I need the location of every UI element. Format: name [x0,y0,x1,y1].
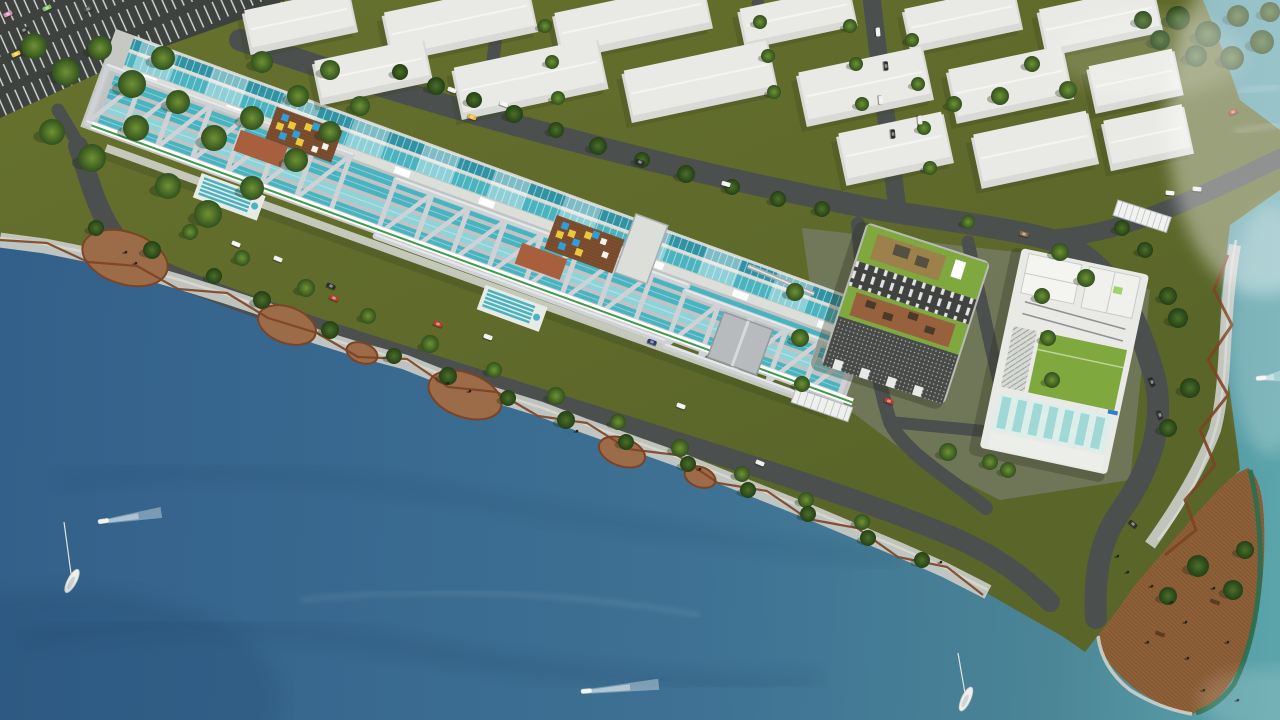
car [874,27,880,37]
car [1165,190,1175,196]
aerial-rendering [0,0,1280,720]
car [882,61,888,71]
car [889,129,895,139]
boat-hull [581,688,592,693]
car [877,95,883,105]
scene-canvas [0,0,1280,720]
car [916,115,922,125]
